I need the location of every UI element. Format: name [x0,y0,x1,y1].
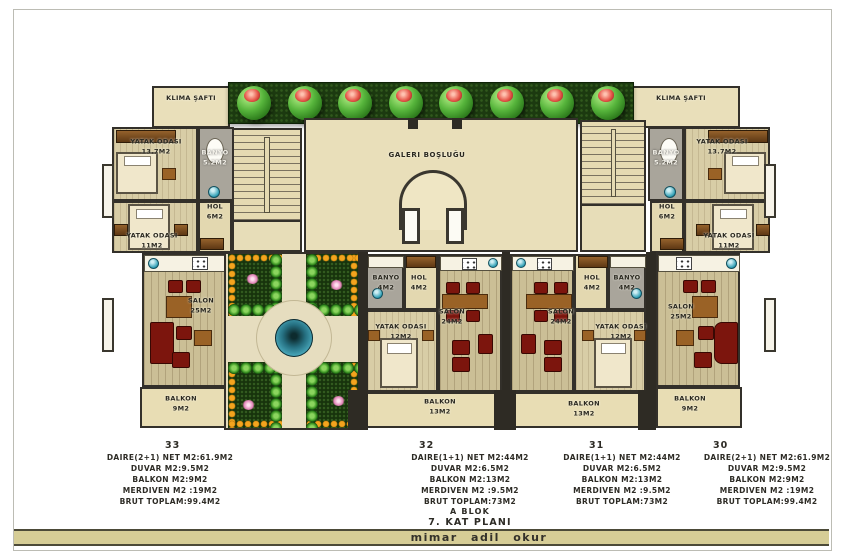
wall-post [408,118,418,129]
room-label: BALKON13M2 [568,399,600,419]
room-label: HOL6M2 [659,202,675,222]
room-area-text: 11M2 [126,241,177,251]
room-name-text: YATAK ODASI [130,137,181,147]
closet [578,256,608,268]
armchair [521,334,536,354]
unit-info-line: MERDIVEN M2 :19M2 [70,485,270,496]
unit-number-32: 32 [419,440,434,451]
stove-icon [537,258,552,270]
room-area-text: 12M2 [595,332,646,342]
room-label: HOL4M2 [411,273,427,293]
unit-info-line: DAIRE(2+1) NET M2:61.9M2 [674,452,843,463]
stairs-right [580,120,646,206]
room-area-text: 4M2 [584,283,600,293]
courtyard-garden [224,252,360,430]
room-name-text: HOL [584,273,600,283]
unit-number-33: 33 [165,440,180,451]
klima-shaft-right [632,86,740,128]
room-area-text: 24M2 [439,317,465,327]
window-recess [764,164,776,218]
unit-info-line: BALKON M2:9M2 [70,474,270,485]
sink-fixture [148,258,159,269]
room-area-text: 9M2 [674,404,706,414]
nightstand [162,168,176,180]
room-label: YATAK ODASI12M2 [375,322,426,342]
chair [466,310,480,322]
sink-fixture [516,258,526,268]
room-name-text: HOL [207,202,223,212]
unit-info-33: DAIRE(2+1) NET M2:61.9M2 DUVAR M2:9.5M2 … [70,452,270,507]
sofa [452,357,470,372]
unit-info-line: DUVAR M2:9.5M2 [674,463,843,474]
room-name-text: SALON [668,302,694,312]
pond [275,319,313,357]
room-name-text: BANYO [373,273,400,283]
floor-title: 7. KAT PLANI [377,517,563,528]
closet [406,256,436,268]
flowering-tree-icon [490,86,524,120]
room-name-text: SALON [439,307,465,317]
flowering-tree-icon [338,86,372,120]
room-area-text: 13M2 [568,409,600,419]
room-name-text: HOL [659,202,675,212]
sink-fixture [488,258,498,268]
unit-info-line: BALKON M2:9M2 [674,474,843,485]
room-name-text: KLIMA ŞAFTI [656,94,706,104]
room-name-text: BALKON [165,394,197,404]
coffee-table [194,330,212,346]
room-name-text: YATAK ODASI [696,137,747,147]
bed [724,152,766,194]
bed [594,338,632,388]
stove-icon [192,257,208,270]
armchair [698,326,714,340]
nightstand [708,168,722,180]
elevator-cab [446,208,464,244]
room-label: BALKON9M2 [165,394,197,414]
room-area-text: 5.2M2 [202,158,229,168]
unit-info-line: DUVAR M2:9.5M2 [70,463,270,474]
room-name-text: GALERI BOŞLUĞU [389,150,466,161]
coffee-table [676,330,694,346]
room-name-text: KLIMA ŞAFTI [166,94,216,104]
unit-number-31: 31 [589,440,604,451]
wall-post [638,390,654,430]
room-name-text: BALKON [568,399,600,409]
room-area-text: 13M2 [424,407,456,417]
room-name-text: YATAK ODASI [595,322,646,332]
room-name-text: HOL [411,273,427,283]
window-recess [102,164,114,218]
room-label: BALKON13M2 [424,397,456,417]
room-area-text: 9M2 [165,404,197,414]
bed [116,152,158,194]
room-name-text: BALKON [674,394,706,404]
corridor-left [232,222,302,252]
room-area-text: 6M2 [207,212,223,222]
room-area-text: 13.7M2 [696,147,747,157]
flowering-tree-icon [591,86,625,120]
room-name-text: YATAK ODASI [703,231,754,241]
room-area-text: 12M2 [375,332,426,342]
nightstand [582,330,594,341]
sofa [714,322,738,364]
unit-info-line: DAIRE(2+1) NET M2:61.9M2 [70,452,270,463]
chair [701,280,716,293]
closet [660,238,684,250]
flowering-tree-icon [389,86,423,120]
armchair [694,352,712,368]
room-label: HOL4M2 [584,273,600,293]
room-label: BANYO4M2 [373,273,400,293]
armchair [478,334,493,354]
room-label: HOL6M2 [207,202,223,222]
room-label: YATAK ODASI13.7M2 [130,137,181,157]
room-label: SALON25M2 [668,302,694,322]
chair [534,282,548,294]
stove-icon [676,257,692,270]
sofa [544,357,562,372]
block-title: A BLOK [377,507,563,517]
room-area-text: 13.7M2 [130,147,181,157]
room-name-text: BANYO [653,148,680,158]
flower-cluster [246,274,259,284]
room-label: SALON25M2 [188,296,214,316]
wall-post [348,390,364,430]
stair-divider [611,129,617,198]
flowering-tree-icon [439,86,473,120]
chair [534,310,548,322]
room-name-text: BANYO [202,148,229,158]
room-area-text: 6M2 [659,212,675,222]
bed [380,338,418,388]
unit-info-line: MERDIVEN M2 :19M2 [674,485,843,496]
dining-table [692,296,718,318]
gallery-void-label: GALERI BOŞLUĞU [389,150,466,161]
window-recess [102,298,114,352]
klima-shaft-right-label: KLIMA ŞAFTI [656,94,706,104]
room-area-text: 5.2M2 [653,158,680,168]
armchair [176,326,192,340]
room-label: YATAK ODASI12M2 [595,322,646,342]
chair [168,280,183,293]
room-area-text: 11M2 [703,241,754,251]
room-name-text: BALKON [424,397,456,407]
wall-post [452,118,462,129]
klima-shaft-left-label: KLIMA ŞAFTI [166,94,216,104]
flower-cluster [330,280,343,290]
room-name-text: YATAK ODASI [126,231,177,241]
stove-icon [462,258,477,270]
room-area-text: 4M2 [373,283,400,293]
room-label: BANYO4M2 [614,273,641,293]
unit-number-30: 30 [713,440,728,451]
armchair [172,352,190,368]
sofa [544,340,562,355]
sink-fixture [208,186,220,198]
klima-shaft-left [152,86,230,128]
room-area-text: 25M2 [188,306,214,316]
flower-cluster [242,400,255,410]
window-recess [764,298,776,352]
sofa [452,340,470,355]
sofa [150,322,174,364]
room-label: YATAK ODASI11M2 [703,231,754,251]
closet [200,238,224,250]
elevator-cab [402,208,420,244]
room-label: SALON24M2 [439,307,465,327]
chair [466,282,480,294]
room-label: BALKON9M2 [674,394,706,414]
sink-fixture [664,186,676,198]
flowering-tree-icon [288,86,322,120]
room-label: YATAK ODASI13.7M2 [696,137,747,157]
chair [186,280,201,293]
room-name-text: SALON [548,307,574,317]
room-name-text: SALON [188,296,214,306]
stair-divider [264,137,270,213]
chair [554,282,568,294]
room-area-text: 24M2 [548,317,574,327]
room-label: YATAK ODASI11M2 [126,231,177,251]
unit-info-line: BRUT TOPLAM:99.4M2 [674,496,843,507]
garden-bed [228,362,282,428]
chair [446,282,460,294]
unit-info-30: DAIRE(2+1) NET M2:61.9M2 DUVAR M2:9.5M2 … [674,452,843,507]
unit-info-line: BRUT TOPLAM:99.4M2 [70,496,270,507]
flower-cluster [332,396,345,406]
bath-counter [610,256,646,268]
room-label: BANYO5.2M2 [653,148,680,168]
room-area-text: 4M2 [411,283,427,293]
sink-fixture [726,258,737,269]
nightstand [756,224,770,236]
room-name-text: BANYO [614,273,641,283]
chair [683,280,698,293]
flowering-tree-icon [540,86,574,120]
architect-name: mimar adil okur [411,531,548,544]
stairs-left [232,128,302,222]
bath-counter [368,256,404,268]
architect-bar: mimar adil okur [14,529,829,546]
room-area-text: 25M2 [668,312,694,322]
floor-plan-page: KLIMA ŞAFTI KLIMA ŞAFTI GALERI BOŞLUĞU Y… [0,0,843,560]
wall-post [494,390,516,430]
room-label: BANYO5.2M2 [202,148,229,168]
flowering-tree-icon [237,86,271,120]
room-area-text: 4M2 [614,283,641,293]
corridor-right [580,206,646,252]
room-name-text: YATAK ODASI [375,322,426,332]
room-label: SALON24M2 [548,307,574,327]
